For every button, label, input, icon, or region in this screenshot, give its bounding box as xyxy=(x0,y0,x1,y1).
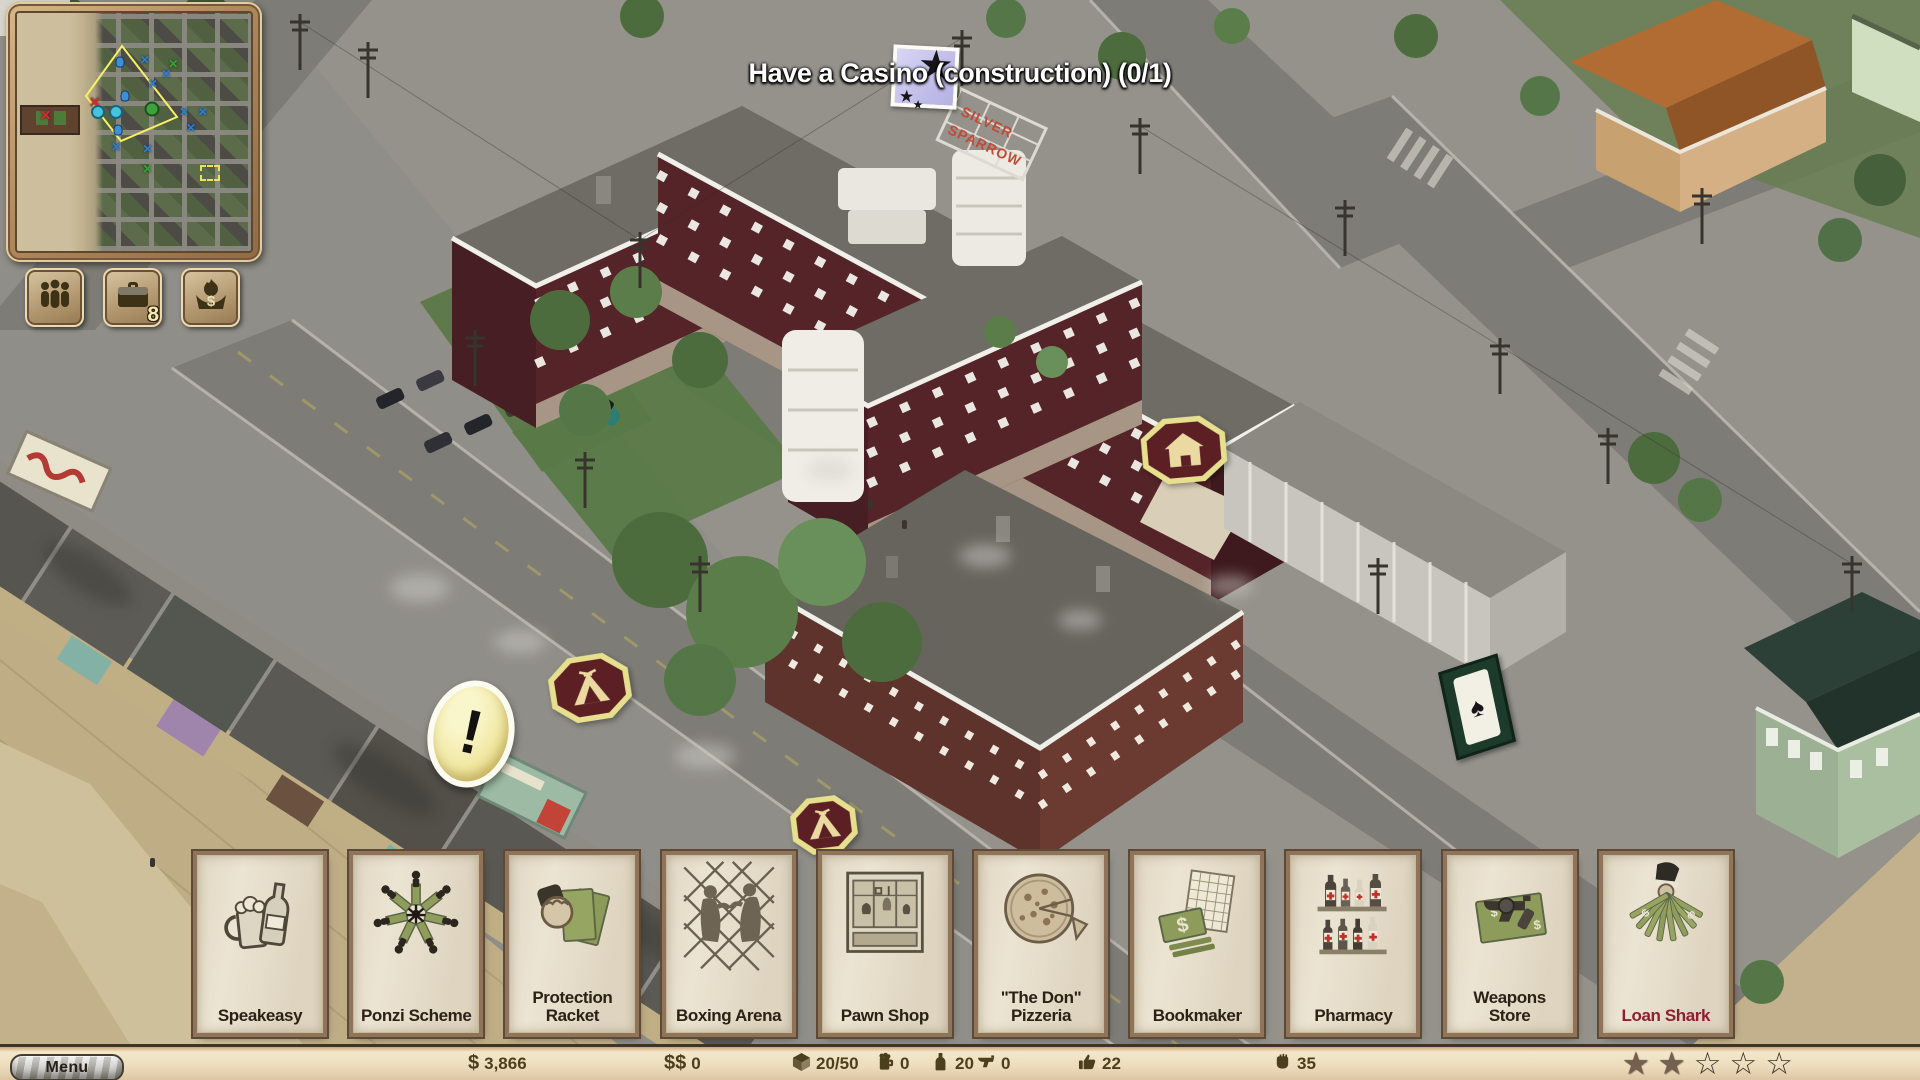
boxing-arena-icon xyxy=(667,858,791,974)
minimap-marker-x-green: ✕ xyxy=(168,58,178,70)
minimap-marker-x-blue: ✕ xyxy=(148,78,158,90)
star-empty-icon: ☆ xyxy=(1765,1048,1793,1079)
minimap-panel: ✕✕✕✕✕✕✕✕✕✕✕✕ xyxy=(6,2,262,262)
home-district-icon[interactable] xyxy=(1137,412,1231,488)
card-label: Ponzi Scheme xyxy=(357,1007,475,1025)
minimap-marker-x-blue: ✕ xyxy=(140,54,150,66)
minimap-buttons: 8$ xyxy=(25,268,240,327)
stat-liked: 22 xyxy=(1078,1047,1121,1080)
briefcase-icon xyxy=(115,277,151,318)
minimap-marker-dot-green xyxy=(144,101,159,116)
menu-button[interactable]: Menu xyxy=(10,1054,124,1080)
minimap-button-money-burn[interactable]: $ xyxy=(181,268,240,327)
exclamation-glyph: ! xyxy=(453,695,489,769)
card-label: Boxing Arena xyxy=(670,1007,788,1025)
minimap-marker-dot-cyan xyxy=(91,105,105,119)
card-label: Pharmacy xyxy=(1294,1007,1412,1025)
stat-clean-money: $3,866 xyxy=(468,1047,527,1080)
currency-prefix: $ xyxy=(468,1052,479,1075)
minimap-marker-dot-cyan xyxy=(109,105,123,119)
minimap-marker-x-red: ✕ xyxy=(40,108,52,122)
card-label: Loan Shark xyxy=(1607,1007,1725,1025)
speakeasy-icon xyxy=(198,858,322,974)
minimap-site-outline xyxy=(200,165,220,181)
build-card-pharmacy[interactable]: Pharmacy xyxy=(1290,855,1416,1033)
protection-racket-icon: $ xyxy=(510,858,634,974)
minimap-button-businesses[interactable]: 8 xyxy=(103,268,162,327)
game-screen: SILVER SPARROW xyxy=(0,0,1920,1080)
build-card-pawn-shop[interactable]: Pawn Shop xyxy=(822,855,948,1033)
beer-icon xyxy=(876,1052,895,1076)
liquor-icon xyxy=(931,1052,950,1076)
stat-dirty-money: $$0 xyxy=(664,1047,701,1080)
tent-site-icon[interactable] xyxy=(787,792,862,859)
minimap[interactable]: ✕✕✕✕✕✕✕✕✕✕✕✕ xyxy=(15,11,253,253)
star-filled-icon: ★ xyxy=(1658,1048,1686,1079)
build-card-loan-shark[interactable]: $$Loan Shark xyxy=(1603,855,1729,1033)
card-label: Bookmaker xyxy=(1138,1007,1256,1025)
minimap-marker-x-blue: ✕ xyxy=(198,106,208,118)
status-bar: Menu $3,866$$020/5002002235 ★★☆☆☆ xyxy=(0,1044,1920,1080)
stat-value: 20/50 xyxy=(816,1054,859,1074)
stat-value: 35 xyxy=(1297,1054,1316,1074)
minimap-marker-x-blue: ✕ xyxy=(186,122,196,134)
menu-button-label: Menu xyxy=(46,1059,89,1077)
star-filled-icon: ★ xyxy=(1622,1048,1650,1079)
stat-guns: 0 xyxy=(977,1047,1010,1080)
people-icon xyxy=(37,277,73,318)
stat-feared: 35 xyxy=(1273,1047,1316,1080)
star-empty-icon: ☆ xyxy=(1729,1048,1757,1079)
minimap-marker-x-blue: ✕ xyxy=(111,141,121,153)
card-label: Protection Racket xyxy=(513,989,631,1025)
minimap-button-crew[interactable] xyxy=(25,268,84,327)
loan-shark-icon: $$ xyxy=(1604,858,1728,974)
spade-icon: ♠ xyxy=(1453,668,1502,746)
stat-beer: 0 xyxy=(876,1047,909,1080)
crate-icon xyxy=(792,1052,811,1076)
card-label: Pawn Shop xyxy=(826,1007,944,1025)
build-card-ponzi-scheme[interactable]: Ponzi Scheme xyxy=(353,855,479,1033)
build-card-protection-racket[interactable]: $Protection Racket xyxy=(509,855,635,1033)
revolver-icon xyxy=(977,1052,996,1076)
pharmacy-icon xyxy=(1291,858,1415,974)
tent-icon xyxy=(801,804,847,845)
button-badge: 8 xyxy=(147,303,159,327)
minimap-marker-x-blue: ✕ xyxy=(143,143,153,155)
build-card-speakeasy[interactable]: Speakeasy xyxy=(197,855,323,1033)
thumb-icon xyxy=(1078,1052,1097,1076)
minimap-marker-person-blue xyxy=(115,57,124,68)
card-label: Speakeasy xyxy=(201,1007,319,1025)
pizzeria-icon xyxy=(979,858,1103,974)
star-empty-icon: ☆ xyxy=(1694,1048,1722,1079)
minimap-marker-person-blue xyxy=(120,91,129,102)
respect-rating: ★★☆☆☆ xyxy=(1622,1047,1793,1080)
build-card-weapons-store[interactable]: $$Weapons Store xyxy=(1447,855,1573,1033)
minimap-marker-person-blue xyxy=(113,124,122,135)
house-icon xyxy=(1155,427,1213,474)
stat-liquor: 20 xyxy=(931,1047,974,1080)
tent-site-icon[interactable] xyxy=(543,648,637,729)
currency-prefix: $$ xyxy=(664,1052,686,1075)
stat-value: 0 xyxy=(1001,1054,1010,1074)
stat-value: 0 xyxy=(900,1054,909,1074)
minimap-marker-x-green: ✕ xyxy=(143,163,153,175)
minimap-marker-x-blue: ✕ xyxy=(179,106,189,118)
stat-value: 3,866 xyxy=(484,1054,527,1074)
build-card-boxing-arena[interactable]: Boxing Arena xyxy=(666,855,792,1033)
svg-text:$: $ xyxy=(206,293,215,310)
stat-value: 22 xyxy=(1102,1054,1121,1074)
burning-money-icon: $ xyxy=(193,277,229,318)
weapons-store-icon: $$ xyxy=(1448,858,1572,974)
bookmaker-icon: $ xyxy=(1135,858,1259,974)
build-card-the-don-pizzeria[interactable]: "The Don" Pizzeria xyxy=(978,855,1104,1033)
build-card-bookmaker[interactable]: $Bookmaker xyxy=(1134,855,1260,1033)
stat-value: 0 xyxy=(691,1054,700,1074)
pawn-shop-icon xyxy=(823,858,947,974)
stat-storage: 20/50 xyxy=(792,1047,859,1080)
minimap-viewport-frame xyxy=(17,13,251,251)
tent-icon xyxy=(561,663,619,713)
stat-value: 20 xyxy=(955,1054,974,1074)
card-label: "The Don" Pizzeria xyxy=(982,989,1100,1025)
fist-icon xyxy=(1273,1052,1292,1076)
card-label: Weapons Store xyxy=(1451,989,1569,1025)
ponzi-scheme-icon xyxy=(354,858,478,974)
